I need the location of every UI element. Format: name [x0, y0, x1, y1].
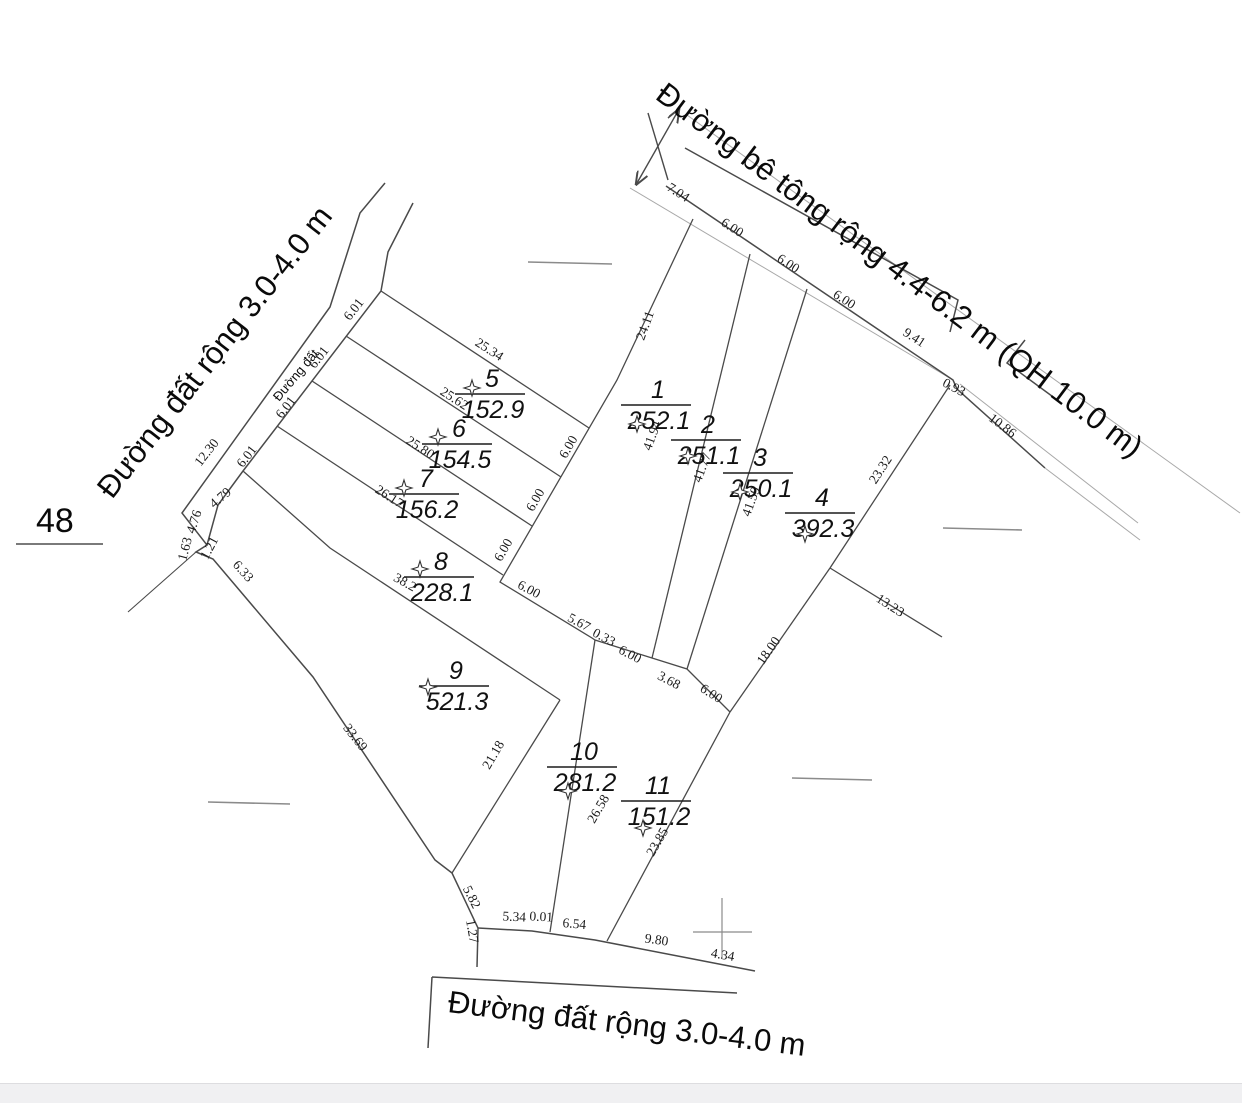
dimension-label: 6.33	[230, 557, 257, 585]
parcel-area: 152.9	[462, 396, 525, 424]
block-number-layer: 48	[16, 502, 103, 544]
parcel-number: 3	[753, 444, 767, 472]
dimension-label: 13.23	[874, 591, 908, 620]
cadastral-map: Đường bê tông rộng 4.4-6.2 m (QH 10.0 m)…	[0, 0, 1242, 1103]
dimension-label: 6.00	[515, 577, 543, 601]
survey-point-icon	[412, 561, 428, 577]
dimension-label: 24.11	[633, 309, 657, 342]
parcel-number: 5	[485, 365, 499, 393]
dimension-labels-layer: 7.046.006.006.009.410.9310.866.016.016.0…	[174, 180, 1019, 965]
road-dirt-bottom-label: Đường đất rộng 3.0-4.0 m	[446, 984, 807, 1063]
dimension-label: 6.00	[774, 251, 802, 277]
parcel4-south-edge	[730, 568, 830, 712]
parcel-area: 154.5	[429, 446, 492, 474]
parcel-labels-layer: 1252.12251.13250.14392.35152.96154.57156…	[389, 365, 855, 836]
tick-dash	[792, 778, 872, 780]
footer-bar	[0, 1083, 1242, 1103]
dimension-label: 9.80	[644, 930, 670, 948]
parcel-number: 9	[449, 657, 463, 685]
dimension-label: 6.00	[616, 642, 644, 666]
dimension-label: 0.01	[529, 908, 553, 924]
dimension-label: 10.86	[986, 410, 1019, 440]
dimension-label: 18.00	[753, 633, 783, 667]
parcel-area: 281.2	[553, 769, 617, 797]
dimension-label: 25.34	[473, 335, 507, 364]
parcel-label: 10281.2	[547, 738, 617, 799]
dimension-label: 4.34	[710, 945, 736, 964]
dimension-label: 23.32	[866, 453, 895, 487]
dimension-label: 9.41	[900, 325, 928, 350]
parcel-area: 521.3	[426, 688, 489, 716]
tick-dash	[208, 802, 290, 804]
dimension-label: 1.21	[197, 534, 221, 562]
dimension-label: 6.00	[556, 433, 581, 461]
parcel-label: 9521.3	[419, 657, 489, 716]
tick-dash	[943, 528, 1022, 530]
parcel-number: 1	[651, 376, 665, 404]
parcel-number: 8	[434, 548, 448, 576]
guide-line	[1045, 468, 1140, 540]
dimension-label: 6.00	[523, 486, 548, 514]
parcel-label: 4392.3	[785, 484, 855, 543]
parcel-label: 1252.1	[621, 376, 691, 435]
dimension-label: 6.01	[340, 295, 366, 323]
road-concrete-label: Đường bê tông rộng 4.4-6.2 m (QH 10.0 m)	[650, 76, 1150, 465]
survey-point-icon	[430, 429, 446, 445]
block-number: 48	[36, 502, 74, 540]
parcel-area: 228.1	[410, 579, 474, 607]
dimension-label: 3.68	[655, 668, 683, 692]
tick-dash	[528, 262, 612, 264]
road-width-arrow	[637, 111, 678, 183]
parcel-area: 156.2	[396, 496, 459, 524]
parcel-number: 4	[815, 484, 829, 512]
parcel-label: 11151.2	[621, 772, 691, 836]
dimension-label: 5.34	[502, 908, 527, 924]
parcel-label: 8228.1	[404, 548, 474, 607]
arrow-line	[648, 113, 668, 180]
dimension-label: 6.54	[562, 915, 587, 932]
parcel-number: 11	[645, 772, 671, 800]
guide-line	[960, 384, 1138, 523]
parcel-boundaries	[243, 219, 950, 941]
dimension-label: 6.01	[233, 442, 259, 470]
parcel-number: 6	[452, 415, 466, 443]
dimension-label: 6.00	[830, 287, 858, 313]
parcel-number: 2	[700, 411, 715, 439]
road-dirt-left-label: Đường đất rộng 3.0-4.0 m	[90, 199, 339, 504]
dimension-label: 33.69	[340, 721, 371, 754]
cadastral-map-page: Đường bê tông rộng 4.4-6.2 m (QH 10.0 m)…	[0, 0, 1242, 1103]
parcel-number: 7	[419, 465, 434, 493]
parcel-area: 392.3	[792, 515, 855, 543]
dimension-label: 4.76	[183, 508, 205, 535]
dimension-label: 1.27	[463, 918, 482, 944]
dimension-label: 6.00	[491, 536, 516, 564]
parcel10-west-edge	[452, 700, 560, 873]
parcel-number: 10	[570, 738, 598, 766]
dimension-label: 21.18	[479, 738, 507, 772]
dimension-label: 6.00	[718, 215, 746, 241]
dimension-label: 1.63	[174, 535, 195, 562]
planning-guide-lines	[630, 115, 1240, 540]
